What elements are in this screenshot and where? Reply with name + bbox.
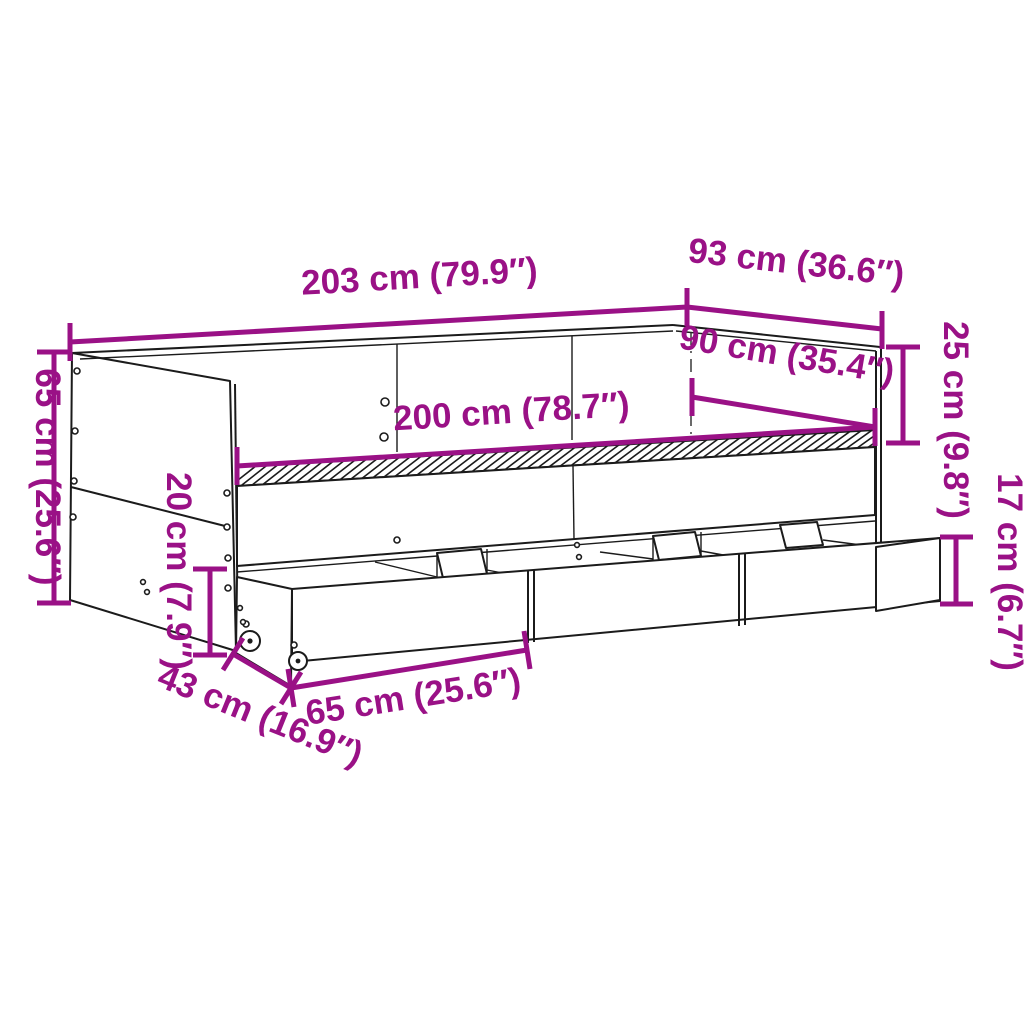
drawer-fronts (292, 538, 940, 662)
diagram-canvas: 203 cm (79.9″) 93 cm (36.6″) 65 cm (25.6… (0, 0, 1024, 1024)
dim-side-height: 65 cm (25.6″) (28, 352, 71, 603)
right-drawer-side (876, 538, 940, 611)
dim-inner-length-label: 200 cm (78.7″) (392, 385, 631, 439)
daybed-dimension-diagram: 203 cm (79.9″) 93 cm (36.6″) 65 cm (25.6… (0, 0, 1024, 1024)
front-rail-seam (573, 466, 574, 539)
dim-inner-width: 90 cm (35.4″) (677, 318, 898, 427)
dim-side-height-label: 65 cm (25.6″) (28, 368, 67, 585)
dim-backrest-height: 25 cm (9.8″) (886, 321, 975, 519)
caster-bracket-dot (291, 642, 297, 648)
bed-line-art (70, 325, 940, 686)
dim-backrest-height-label: 25 cm (9.8″) (936, 321, 975, 519)
dim-overall-length-label: 203 cm (79.9″) (300, 250, 538, 303)
dim-drawer-height-label: 17 cm (6.7″) (990, 473, 1024, 671)
dim-overall-depth-label: 93 cm (36.6″) (686, 231, 906, 294)
dim-under-clearance-label: 20 cm (7.9″) (159, 472, 198, 670)
dim-drawer-width-label: 65 cm (25.6″) (303, 660, 524, 732)
